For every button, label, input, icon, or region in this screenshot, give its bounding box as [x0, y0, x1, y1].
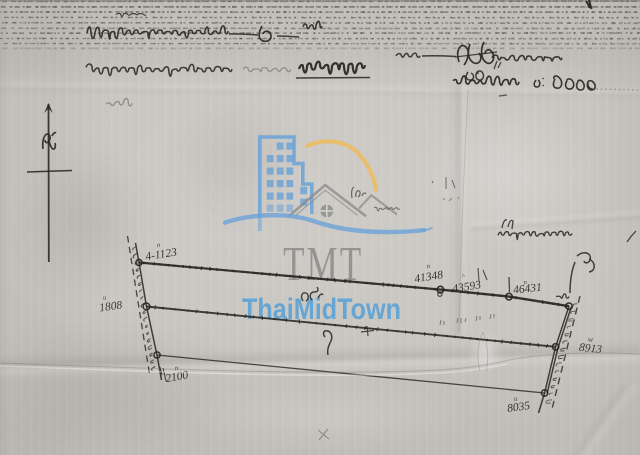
svg-text:ThaiMidTown: ThaiMidTown [242, 293, 401, 326]
svg-text:n: n [156, 241, 161, 250]
svg-text:^: ^ [461, 272, 466, 281]
svg-text:1808: 1808 [99, 299, 124, 314]
svg-text:u: u [513, 395, 518, 403]
svg-text:n: n [426, 262, 431, 271]
svg-text:u: u [102, 293, 107, 301]
svg-text:4-1123: 4-1123 [145, 246, 178, 263]
svg-text:46431: 46431 [513, 282, 543, 297]
svg-text:n: n [174, 364, 179, 373]
svg-text:TMT: TMT [283, 238, 363, 292]
svg-text:41348: 41348 [414, 269, 445, 285]
svg-text:8035: 8035 [506, 400, 531, 415]
